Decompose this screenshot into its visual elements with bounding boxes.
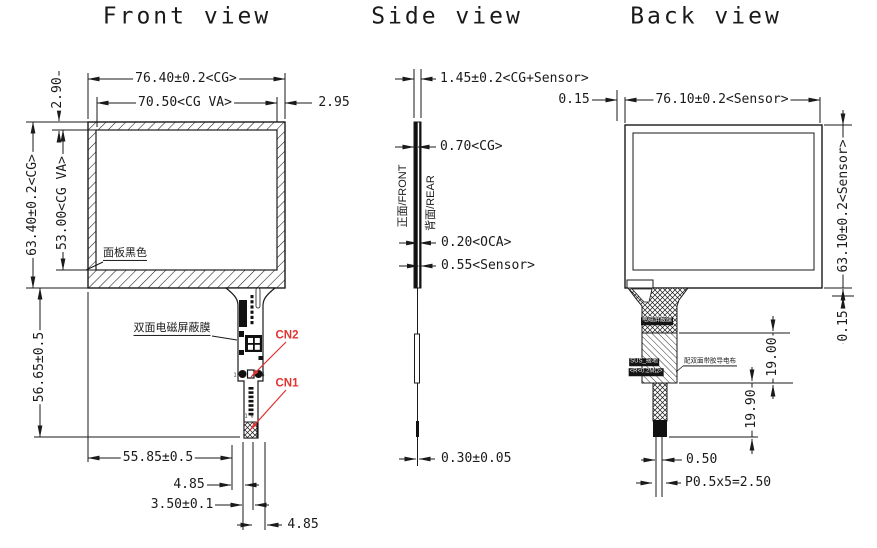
cn2-pin6-mark: 6 [259,373,266,379]
dim-back-pin-pitch: P0.5x5=2.50 [685,476,771,490]
dim-front-tail-length: 56.65±0.5 [33,330,47,404]
back-tail-notch [627,280,653,288]
cn1-pin-marks: 1 6 [242,414,255,420]
dim-front-width-cg: 76.40±0.2<CG> [133,72,239,86]
back-tail-tip [653,420,667,437]
front-tail-slot [256,288,260,308]
dim-side-oca-thickness: 0.20<OCA> [441,236,511,250]
label-cn1: CN1 [273,378,300,391]
label-back-resistance: <R<0.2MΩ> [629,368,664,376]
back-panel-outer [625,125,822,288]
dim-front-side-border: 2.95 [318,96,349,110]
label-panel-black: 面板黑色 [103,247,147,261]
dim-front-width-va: 70.50<CG VA> [136,96,234,110]
dim-side-fpc-thickness: 0.30±0.05 [441,452,511,466]
dim-side-cg-thickness: 0.70<CG> [440,140,503,154]
label-front-face: 正面/FRONT [397,165,409,228]
dim-back-tail-seg2: 19.90 [745,387,759,430]
dim-front-tail-w2: 3.50±0.1 [151,498,214,512]
dim-side-total-thickness: 1.45±0.2<CG+Sensor> [440,72,589,86]
dim-front-height-cg: 63.40±0.2<CG> [26,152,40,258]
back-view-geometry [592,90,854,497]
label-back-sus-ground: SUS_接地 [629,358,659,366]
label-cn2: CN2 [273,330,300,343]
side-view-geometry [395,69,436,466]
back-view-title: Back view [628,4,784,29]
dim-back-bottom-gap: 0.15 [837,308,851,343]
front-view-title: Front view [101,4,273,29]
dim-front-tail-w3: 4.85 [287,518,318,532]
label-emi-shield-film: 双面电磁屏蔽膜 [134,322,211,336]
drawing-linework [0,0,877,548]
dim-front-tail-w1: 4.85 [173,478,204,492]
dim-side-sensor-thickness: 0.55<Sensor> [441,259,535,273]
dim-front-top-border: 2.90 [51,75,65,110]
dim-back-pin-width: 0.50 [686,453,717,467]
technical-drawing-page: Front view Side view Back view 76.40±0.2… [0,0,877,548]
side-fpc-stiffener [415,334,420,383]
cn2-pin1-mark: 1 [231,373,238,379]
front-cn2-pad-left [239,370,247,378]
label-back-conductive: 配双面带胶导电布 [683,357,737,366]
dim-front-height-va: 53.00<CG VA> [56,154,70,252]
dim-back-width-sensor: 76.10±0.2<Sensor> [653,93,790,107]
dim-back-height-sensor: 63.10±0.2<Sensor> [837,137,851,274]
dim-front-tail-offset: 55.85±0.5 [121,451,195,465]
label-back-shield-film: 电磁屏蔽膜 [641,317,673,325]
label-rear-face: 背面/REAR [425,175,437,231]
back-tail-fpc [653,383,667,421]
side-view-title: Side view [369,4,525,29]
dim-back-tail-seg1: 19.00 [766,335,780,378]
dim-back-left-gap: 0.15 [558,93,589,107]
